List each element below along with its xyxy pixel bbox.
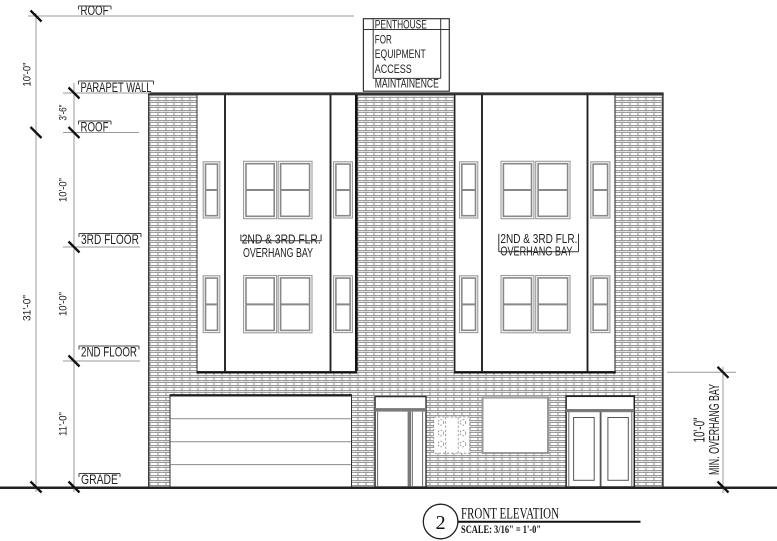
svg-text:EQUIPMENT: EQUIPMENT [375,47,426,61]
svg-text:ROOF: ROOF [81,2,109,18]
svg-text:10'-0": 10'-0" [58,178,70,202]
svg-text:OVERHANG BAY: OVERHANG BAY [243,246,313,260]
svg-text:FOR: FOR [375,32,392,46]
svg-text:10'-0": 10'-0" [692,418,709,443]
svg-text:10'-0": 10'-0" [22,62,34,86]
svg-text:FRONT ELEVATION: FRONT ELEVATION [461,506,559,523]
svg-text:31'-0": 31'-0" [22,295,34,321]
svg-text:11'-0": 11'-0" [58,412,70,436]
svg-text:OVERHANG BAY: OVERHANG BAY [500,244,572,258]
svg-text:MAINTAINENCE: MAINTAINENCE [375,77,439,91]
svg-text:2: 2 [436,512,446,534]
svg-text:SCALE: 3/16" = 1'-0": SCALE: 3/16" = 1'-0" [461,524,541,536]
svg-text:PENTHOUSE: PENTHOUSE [375,18,427,32]
svg-text:ACCESS: ACCESS [375,62,412,76]
svg-text:10'-0": 10'-0" [58,292,70,316]
svg-text:2ND & 3RD FLR.: 2ND & 3RD FLR. [242,233,321,247]
svg-text:MIN. OVERHANG BAY: MIN. OVERHANG BAY [707,384,723,475]
svg-text:3'-6": 3'-6" [58,104,70,120]
